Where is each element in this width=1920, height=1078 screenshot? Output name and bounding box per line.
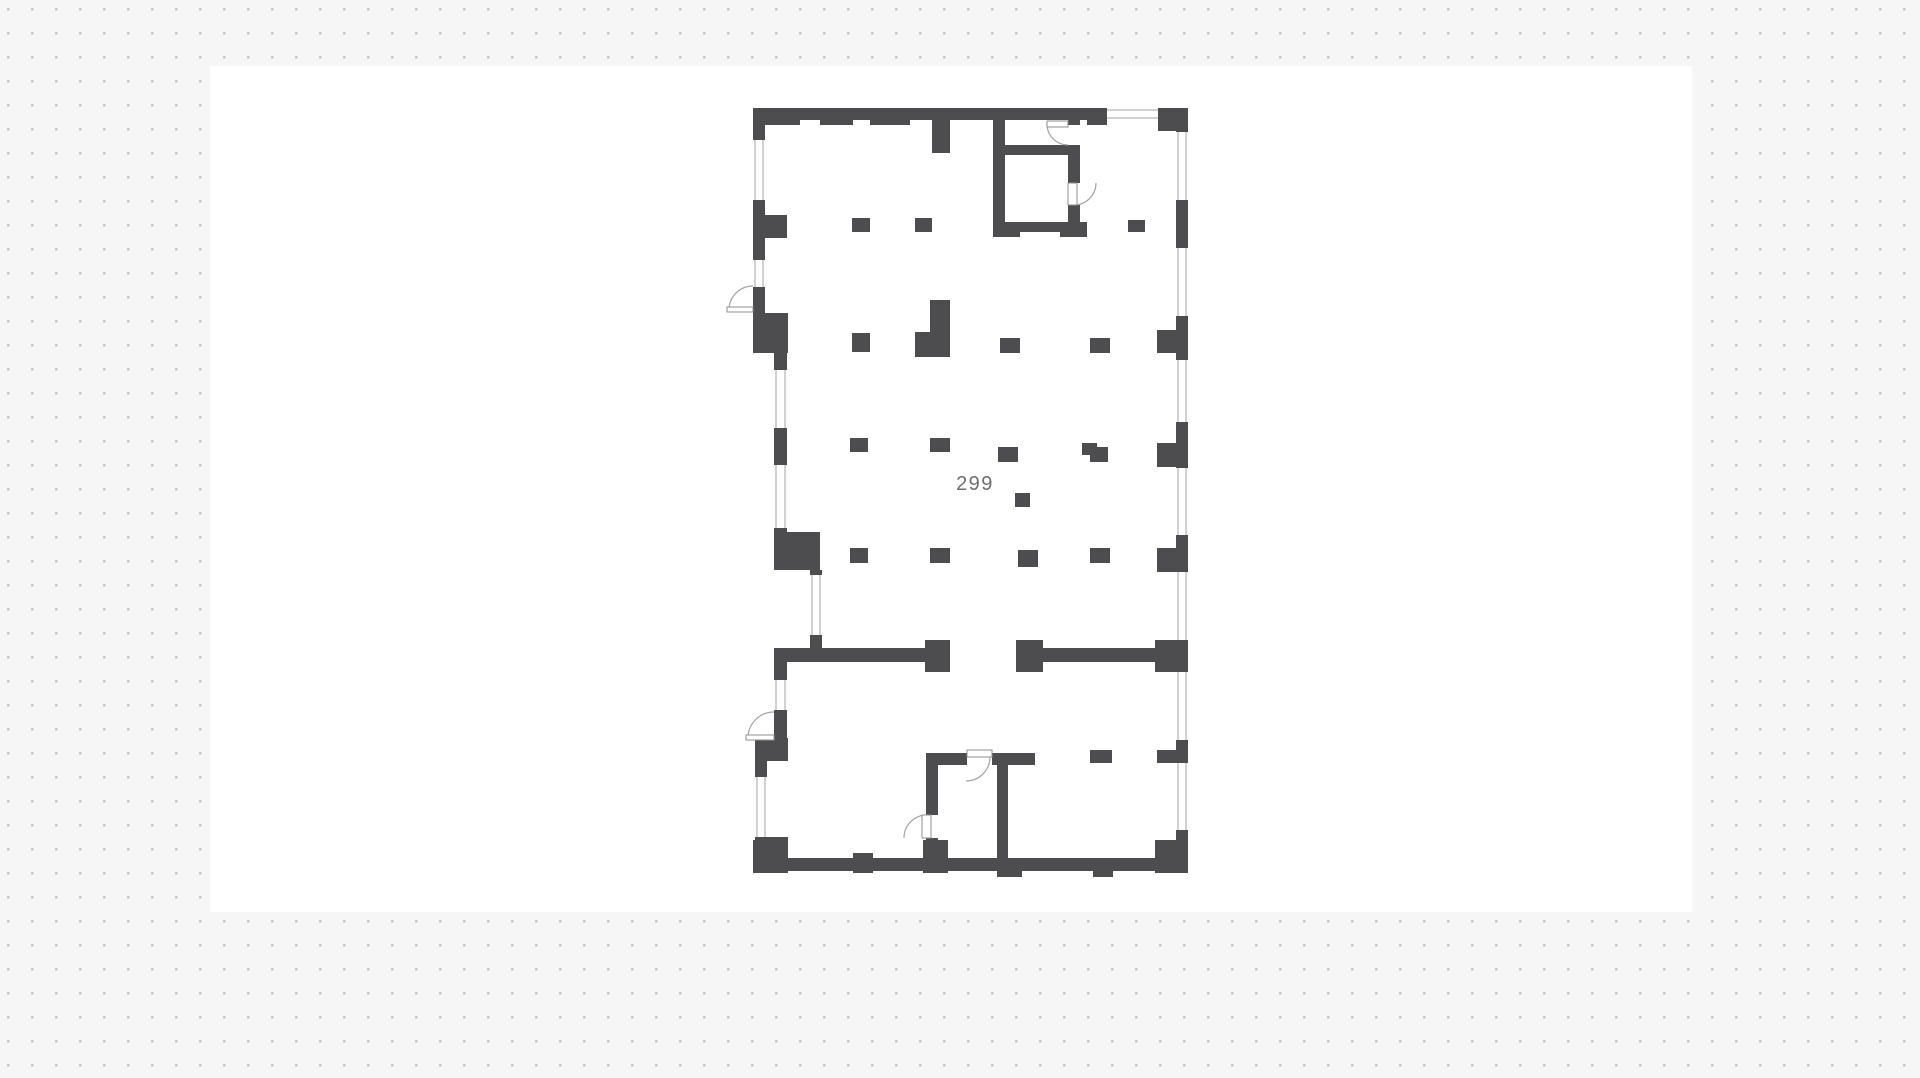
door-leaf xyxy=(746,735,774,740)
door-leaf xyxy=(1047,121,1068,127)
room-label[interactable]: 299 xyxy=(956,473,994,495)
door-leaf xyxy=(922,815,931,838)
canvas-stage: 299 xyxy=(0,0,1920,1078)
floor-plan[interactable]: 299 xyxy=(727,108,1188,877)
door-leaf xyxy=(1068,183,1077,205)
canvas[interactable]: 299 xyxy=(0,0,1920,1078)
door-leaf xyxy=(727,307,753,312)
door-leaf xyxy=(967,750,992,757)
